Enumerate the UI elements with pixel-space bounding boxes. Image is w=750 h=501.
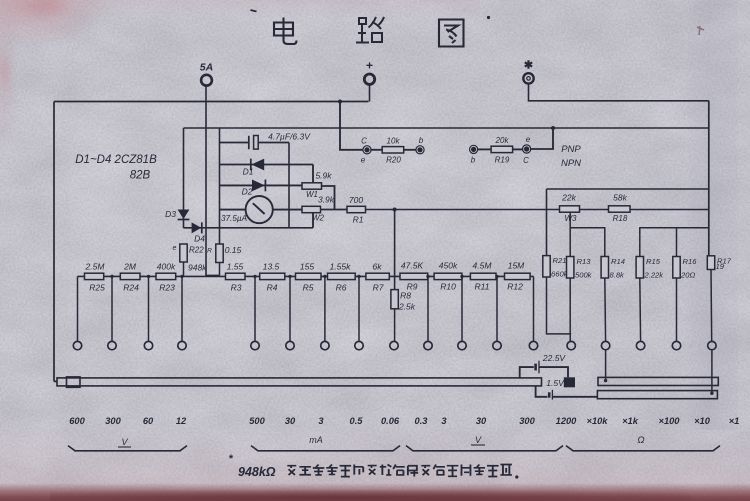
- svg-text:R: R: [207, 248, 212, 255]
- svg-text:0.3: 0.3: [415, 416, 429, 426]
- svg-text:450k: 450k: [439, 260, 458, 270]
- svg-text:500k: 500k: [575, 271, 593, 280]
- svg-text:e: e: [361, 156, 366, 165]
- svg-text:R16: R16: [683, 257, 698, 266]
- svg-text:R3: R3: [231, 283, 242, 293]
- svg-text:R14: R14: [611, 257, 625, 266]
- svg-text:2.5M: 2.5M: [85, 261, 106, 271]
- svg-text:400k: 400k: [157, 261, 176, 271]
- svg-text:b: b: [419, 136, 424, 145]
- svg-text:C: C: [361, 137, 367, 146]
- svg-text:5A: 5A: [200, 62, 213, 74]
- svg-text:1.5V: 1.5V: [546, 378, 565, 388]
- svg-text:*: *: [229, 453, 234, 465]
- svg-text:V: V: [121, 437, 128, 447]
- svg-text:D1: D1: [243, 167, 254, 177]
- svg-text:1.55: 1.55: [227, 261, 244, 271]
- svg-text:22.5V: 22.5V: [542, 353, 567, 363]
- svg-text:PNP: PNP: [561, 144, 581, 155]
- svg-text:300: 300: [519, 416, 535, 426]
- svg-text:82B: 82B: [130, 170, 151, 182]
- svg-text:R10: R10: [440, 282, 456, 292]
- svg-text:R21: R21: [553, 256, 567, 265]
- svg-text:37.5µA: 37.5µA: [221, 214, 248, 223]
- svg-text:e: e: [173, 245, 177, 252]
- svg-text:×1k: ×1k: [622, 416, 639, 426]
- svg-text:10k: 10k: [387, 137, 401, 146]
- svg-text:30: 30: [285, 416, 296, 426]
- svg-text:mA: mA: [309, 435, 323, 445]
- svg-text:R4: R4: [267, 283, 278, 293]
- svg-text:R19: R19: [495, 156, 510, 165]
- svg-text:R15: R15: [646, 257, 661, 266]
- svg-text:1200: 1200: [556, 416, 578, 426]
- svg-text:6k: 6k: [373, 261, 383, 271]
- svg-text:2M: 2M: [123, 261, 137, 271]
- svg-text:948k: 948k: [188, 263, 207, 273]
- svg-text:0.06: 0.06: [381, 416, 400, 426]
- svg-text:700: 700: [349, 195, 363, 205]
- svg-text:2.5k: 2.5k: [398, 302, 416, 312]
- svg-text:×10k: ×10k: [587, 416, 609, 426]
- svg-text:W1: W1: [306, 190, 318, 199]
- svg-text:D1~D4 2CZ81B: D1~D4 2CZ81B: [75, 154, 157, 166]
- svg-text:3: 3: [441, 416, 447, 426]
- svg-text:b: b: [471, 156, 476, 165]
- svg-text:12: 12: [176, 416, 187, 426]
- svg-text:R6: R6: [336, 283, 347, 293]
- svg-text:58k: 58k: [613, 193, 627, 203]
- svg-text:R1: R1: [353, 215, 364, 225]
- svg-text:R18: R18: [613, 214, 628, 223]
- svg-text:R24: R24: [123, 283, 139, 293]
- svg-text:R5: R5: [303, 283, 314, 293]
- svg-text:300: 300: [105, 416, 121, 426]
- svg-text:47.5K: 47.5K: [401, 260, 424, 270]
- svg-text:20k: 20k: [495, 136, 510, 145]
- svg-text:60: 60: [143, 416, 154, 426]
- svg-text:13.5: 13.5: [263, 261, 280, 271]
- svg-text:R13: R13: [577, 257, 592, 266]
- svg-text:4.5M: 4.5M: [473, 260, 493, 270]
- svg-text:3.9k: 3.9k: [318, 195, 335, 205]
- svg-text:×100: ×100: [659, 416, 681, 426]
- svg-text:R11: R11: [475, 282, 490, 292]
- svg-text:R7: R7: [373, 283, 384, 293]
- svg-text:R23: R23: [159, 283, 175, 293]
- svg-text:0.15: 0.15: [225, 245, 242, 255]
- svg-text:D3: D3: [165, 209, 176, 219]
- svg-text:155: 155: [300, 261, 314, 271]
- svg-text:1.55k: 1.55k: [330, 261, 352, 271]
- svg-text:500: 500: [249, 416, 265, 426]
- svg-text:4.7µF/6.3V: 4.7µF/6.3V: [268, 132, 311, 142]
- svg-text:600: 600: [69, 416, 85, 426]
- svg-text:D4: D4: [194, 234, 205, 244]
- svg-text:NPN: NPN: [561, 158, 581, 169]
- svg-text:C: C: [523, 156, 529, 165]
- svg-text:Ω: Ω: [637, 435, 644, 446]
- svg-text:R20: R20: [386, 156, 401, 165]
- svg-text:R22: R22: [189, 246, 204, 255]
- svg-text:948kΩ: 948kΩ: [238, 465, 276, 479]
- svg-text:D2: D2: [242, 187, 253, 197]
- svg-text:V: V: [475, 435, 482, 445]
- svg-text:8.8k: 8.8k: [610, 271, 626, 280]
- svg-text:15M: 15M: [508, 260, 525, 270]
- svg-text:e: e: [526, 135, 531, 144]
- svg-text:R8: R8: [400, 291, 411, 301]
- svg-text:19: 19: [716, 262, 725, 271]
- svg-text:R12: R12: [507, 282, 523, 292]
- svg-text:0.5: 0.5: [350, 416, 364, 426]
- svg-text:3: 3: [318, 416, 324, 426]
- svg-text:+: +: [366, 59, 373, 73]
- svg-text:✱: ✱: [524, 60, 533, 72]
- svg-text:2.22k: 2.22k: [644, 271, 665, 280]
- svg-text:×1: ×1: [729, 416, 740, 426]
- svg-text:20Ω: 20Ω: [680, 271, 695, 280]
- svg-text:22k: 22k: [561, 193, 576, 203]
- svg-text:5.9k: 5.9k: [315, 171, 332, 181]
- svg-text:30: 30: [476, 416, 487, 426]
- svg-text:R25: R25: [89, 283, 105, 293]
- svg-text:×10: ×10: [694, 416, 711, 426]
